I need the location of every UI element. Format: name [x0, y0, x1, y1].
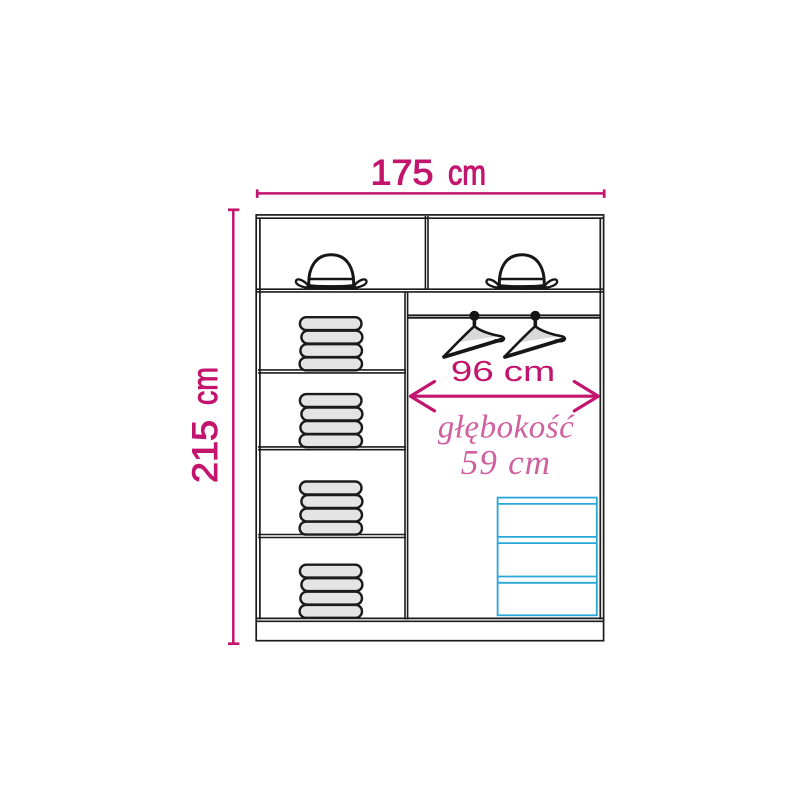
svg-text:cm: cm — [448, 154, 486, 193]
svg-text:59 cm: 59 cm — [461, 443, 552, 482]
svg-text:175: 175 — [371, 154, 434, 193]
svg-text:96 cm: 96 cm — [451, 356, 556, 388]
svg-text:215: 215 — [186, 420, 225, 483]
svg-text:głębokość: głębokość — [438, 410, 575, 446]
svg-text:cm: cm — [186, 367, 225, 405]
